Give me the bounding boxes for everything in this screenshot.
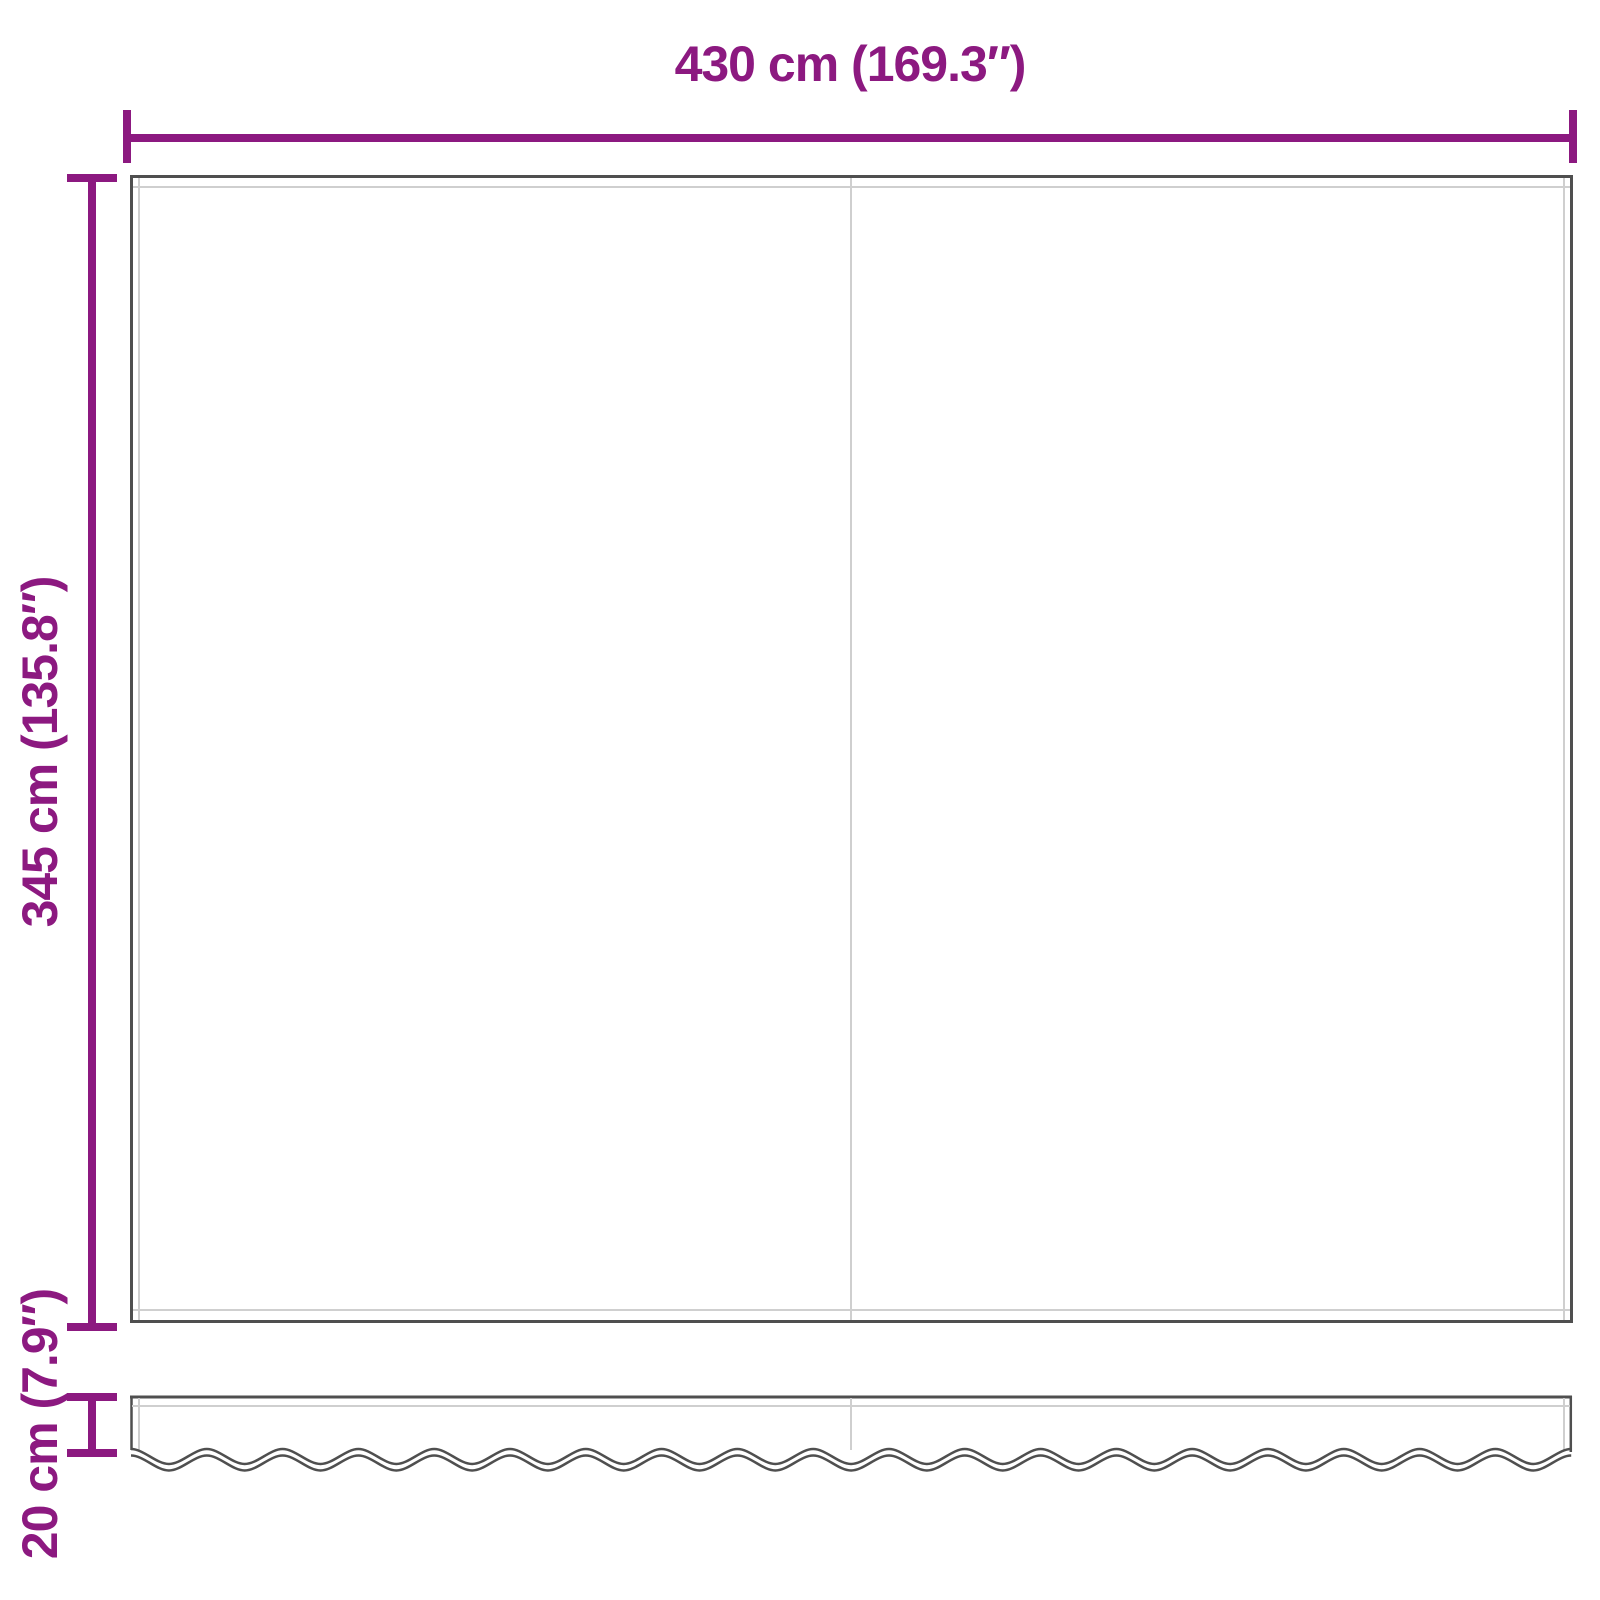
width-dimension-line — [127, 110, 1573, 163]
valance-panel — [130, 1396, 1572, 1471]
height-dimension-label: 345 cm (135.8″) — [15, 577, 65, 928]
valance-dimension-line — [67, 1397, 117, 1453]
fabric-panel — [132, 177, 1572, 1322]
valance-wave-top — [131, 1449, 1571, 1464]
diagram-artwork — [0, 0, 1600, 1600]
width-dimension-label: 430 cm (169.3″) — [675, 39, 1026, 89]
product-dimension-diagram: 430 cm (169.3″) 345 cm (135.8″) 20 cm (7… — [0, 0, 1600, 1600]
valance-height-dimension-label: 20 cm (7.9″) — [15, 1289, 65, 1559]
height-dimension-line — [67, 178, 117, 1327]
